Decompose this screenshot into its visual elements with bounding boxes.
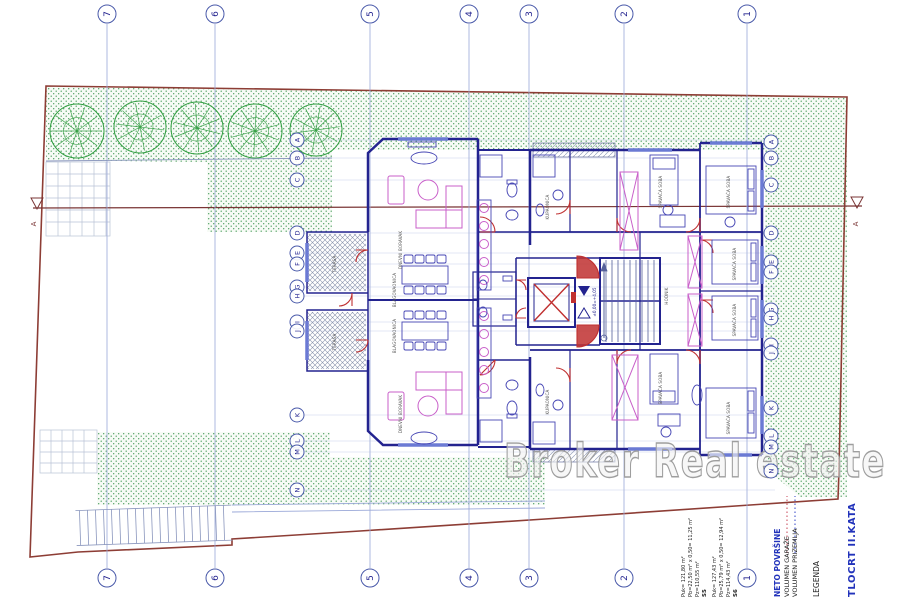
- grid-row-bubble-left: D: [290, 226, 304, 240]
- grid-bubble-label: B: [767, 156, 775, 160]
- fixtures: [402, 142, 758, 444]
- room-label: SPAVAĆA SOBA: [658, 372, 663, 405]
- grid-row-bubble-left: B: [290, 151, 304, 165]
- room-label: HODNIK: [664, 287, 669, 304]
- grid-bubble-label: B: [293, 156, 301, 160]
- grid-row-bubble-left: C: [290, 173, 304, 187]
- grid-column-bubble-bottom: 2: [615, 569, 633, 587]
- legend-heading: LEGENDA: [812, 560, 821, 597]
- room-label: TERASA: [332, 334, 337, 352]
- svg-text:Pz=110,55 m²: Pz=110,55 m²: [695, 561, 701, 597]
- room-label: DNEVNI BORAVAK: [398, 395, 403, 434]
- svg-text:Pb=22,50 m² x 0,50= 11,25 m²: Pb=22,50 m² x 0,50= 11,25 m²: [688, 518, 694, 597]
- legend-title: TLOCRT II.KATA: [847, 503, 858, 597]
- grid-row-bubble-right: J: [764, 346, 778, 360]
- svg-text:S6: S6: [733, 589, 739, 597]
- elevator: [534, 284, 576, 321]
- grid-bubble-label: K: [767, 405, 775, 410]
- grid-bubble-label: L: [767, 434, 775, 438]
- grid-bubble-label: 5: [366, 11, 376, 17]
- grid-row-bubble-right: C: [764, 178, 778, 192]
- legend: TLOCRT II.KATA LEGENDA VOLUMEN PRIZEMLJA…: [681, 496, 858, 597]
- elevator-door: [571, 292, 576, 303]
- grid-bubble-label: 1: [743, 11, 753, 17]
- svg-text:Pz=114,43 m²: Pz=114,43 m²: [726, 561, 732, 597]
- grid-row-bubble-right: N: [764, 464, 778, 478]
- section-label-right: A: [852, 221, 860, 226]
- room-label: TERASA: [332, 256, 337, 274]
- room-label: BLAGOVAONICA: [392, 319, 397, 353]
- exterior-stairs: [75, 505, 232, 545]
- grid-bubble-label: D: [293, 230, 301, 235]
- grid-bubble-label: 6: [211, 575, 221, 581]
- grid-column-bubble-bottom: 5: [361, 569, 379, 587]
- section-label-left: A: [30, 221, 38, 226]
- svg-text:Puk= 127,43 m²: Puk= 127,43 m²: [712, 556, 718, 597]
- room-label: BLAGOVAONICA: [392, 273, 397, 307]
- grid-bubble-label: 7: [103, 575, 113, 581]
- grid-row-bubble-right: K: [764, 401, 778, 415]
- level-text: ±0,00=+4,05: [592, 287, 597, 317]
- grid-column-bubble-bottom: 1: [738, 569, 756, 587]
- legend-apartment-s5: S5 Pz=110,55 m² Pb=22,50 m² x 0,50= 11,2…: [681, 518, 708, 597]
- grid-row-bubble-right: H: [764, 311, 778, 325]
- svg-text:Pb=25,79 m² x 0,50= 12,94 m²: Pb=25,79 m² x 0,50= 12,94 m²: [719, 518, 725, 597]
- grid-bubble-label: J: [767, 352, 775, 355]
- room-label: KUPAONICA: [545, 194, 550, 219]
- grid-column-bubble-top: 2: [615, 5, 633, 23]
- grid-bubble-label: 3: [525, 11, 535, 17]
- grid-bubble-label: H: [293, 293, 301, 298]
- room-label: SPAVAĆA SOBA: [726, 402, 731, 435]
- grid-row-bubble-right: M: [764, 440, 778, 454]
- grid-column-bubble-bottom: 6: [206, 569, 224, 587]
- grid-bubble-label: E: [293, 251, 301, 255]
- grid-bubble-label: N: [293, 487, 301, 492]
- legend-volume-garage: VOLUMEN GARAŽE: [782, 536, 791, 597]
- grid-bubble-label: K: [293, 412, 301, 417]
- grid-bubble-label: E: [767, 260, 775, 264]
- grid-bubble-label: M: [767, 444, 775, 450]
- grid-row-bubble-left: M: [290, 445, 304, 459]
- grid-bubble-label: 2: [620, 575, 630, 581]
- grid-bubble-label: J: [293, 330, 301, 333]
- grid-column-bubble-bottom: 7: [98, 569, 116, 587]
- grid-bubble-label: 3: [525, 575, 535, 581]
- dining-tables: [402, 255, 448, 350]
- grid-bubble-label: I: [293, 321, 301, 323]
- grid-row-bubble-left: F: [290, 257, 304, 271]
- grid-row-bubble-right: F: [764, 265, 778, 279]
- grid-bubble-label: 4: [465, 11, 475, 17]
- legend-volume-ground: VOLUMEN PRIZEMLJA: [791, 528, 799, 597]
- grid-bubble-label: L: [293, 439, 301, 443]
- grid-bubble-label: C: [293, 177, 301, 182]
- grid-bubble-label: A: [767, 139, 775, 144]
- grid-column-bubble-bottom: 4: [460, 569, 478, 587]
- grid-bubble-label: 7: [103, 11, 113, 17]
- grid-column-bubble-top: 3: [520, 5, 538, 23]
- floor-plan-svg: A A: [0, 0, 900, 600]
- grid-bubble-label: 5: [366, 575, 376, 581]
- grid-row-bubble-left: J: [290, 324, 304, 338]
- grid-row-bubble-left: A: [290, 133, 304, 147]
- grid-bubble-label: F: [767, 270, 775, 274]
- grid-bubble-label: M: [293, 449, 301, 455]
- grid-row-bubble-right: D: [764, 226, 778, 240]
- watermark: Broker Real estate: [504, 434, 886, 488]
- grid-column-bubble-top: 1: [738, 5, 756, 23]
- grid-bubble-label: C: [767, 182, 775, 187]
- grid-column-bubble-top: 7: [98, 5, 116, 23]
- svg-text:Puk= 121,80 m²: Puk= 121,80 m²: [681, 556, 687, 597]
- section-line: [31, 197, 863, 209]
- grid-bubble-label: 2: [620, 11, 630, 17]
- grid-row-bubble-right: B: [764, 151, 778, 165]
- paving-grid: [40, 162, 110, 473]
- grid-column-bubble-top: 6: [206, 5, 224, 23]
- room-label: KUPAONICA: [545, 389, 550, 414]
- grid-row-bubble-right: A: [764, 135, 778, 149]
- room-label: SPAVAĆA SOBA: [732, 248, 737, 281]
- room-label: SPAVAĆA SOBA: [732, 304, 737, 337]
- walls: [307, 139, 762, 455]
- svg-text:S5: S5: [702, 589, 708, 597]
- grid-row-bubble-left: N: [290, 483, 304, 497]
- grid-bubble-label: 6: [211, 11, 221, 17]
- legend-apartment-s6: S6 Pz=114,43 m² Pb=25,79 m² x 0,50= 12,9…: [712, 518, 739, 597]
- grid-row-bubble-left: K: [290, 408, 304, 422]
- room-label: DNEVNI BORAVAK: [398, 231, 403, 270]
- grid-row-bubble-left: H: [290, 289, 304, 303]
- grid-column-bubble-top: 5: [361, 5, 379, 23]
- grid-bubble-label: A: [293, 137, 301, 142]
- room-label: SPAVAĆA SOBA: [658, 176, 663, 209]
- grid-bubble-label: H: [767, 315, 775, 320]
- building: ±0,00=+4,05: [307, 139, 762, 462]
- grid-bubble-label: D: [767, 230, 775, 235]
- grid-column-bubble-bottom: 3: [520, 569, 538, 587]
- room-label: SPAVAĆA SOBA: [726, 176, 731, 209]
- grid-bubble-label: F: [293, 262, 301, 266]
- grid-column-bubble-top: 4: [460, 5, 478, 23]
- grid-bubble-label: N: [767, 468, 775, 473]
- staircase: [600, 260, 660, 342]
- drawing-canvas: A A: [0, 0, 900, 600]
- legend-net-areas: NETO POVRŠINE: [773, 529, 782, 597]
- grid-bubble-label: 4: [465, 575, 475, 581]
- level-markers: [578, 286, 590, 318]
- grid-bubble-label: 1: [743, 575, 753, 581]
